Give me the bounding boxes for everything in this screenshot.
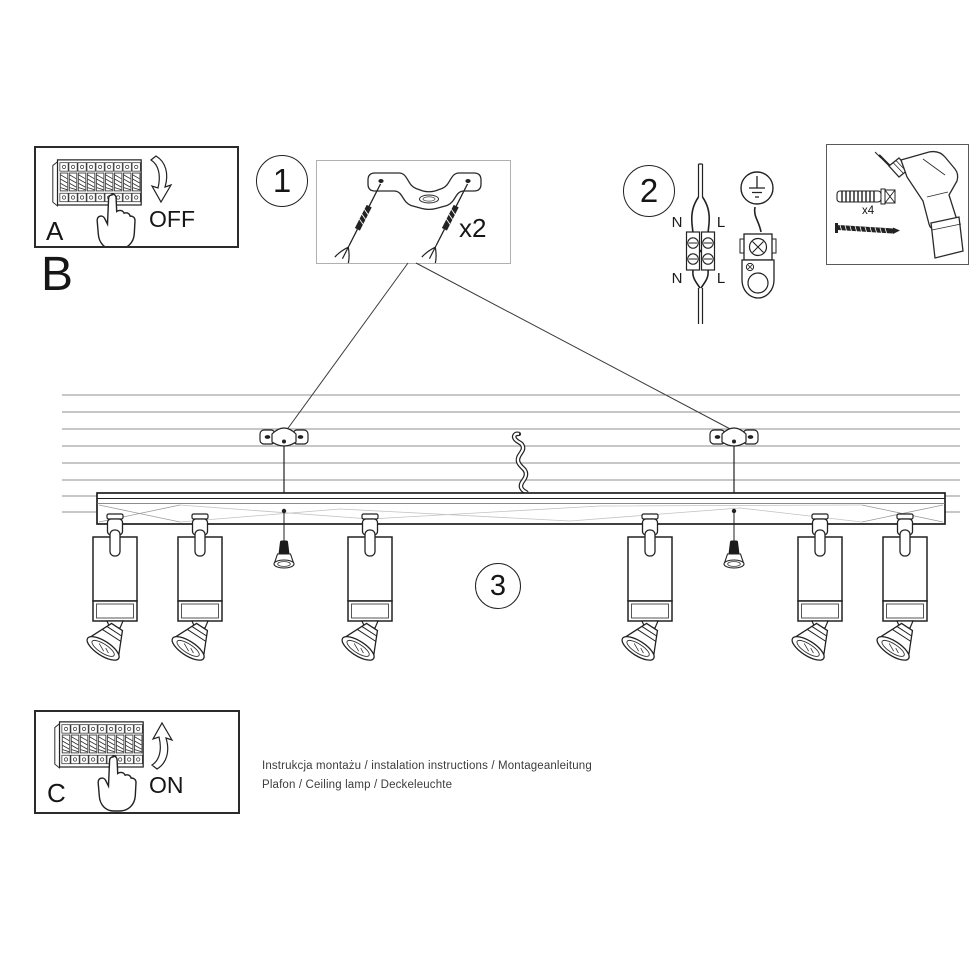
panel-c: ON C (34, 710, 240, 814)
expansion-screw-icon (335, 180, 387, 263)
arrow-up-icon (152, 723, 172, 769)
panel-a: OFF A (34, 146, 239, 248)
step-1-badge: 1 (256, 155, 308, 207)
footer-text: Instrukcja montażu / instalation instruc… (262, 757, 592, 795)
step-2-number: 2 (640, 172, 658, 210)
ceiling-lamp-illustration (40, 255, 970, 705)
breaker-panel-icon (53, 160, 141, 206)
breaker-panel-icon (55, 722, 143, 768)
step-1-number: 1 (273, 162, 291, 200)
leader-lines (286, 263, 734, 431)
wall-plug-icon (837, 189, 895, 204)
spotlight-icon (789, 514, 842, 665)
quantity-x4: x4 (862, 206, 874, 218)
step-3-badge: 3 (475, 563, 521, 609)
live-label-top: L (717, 214, 725, 231)
instruction-sheet: OFF A B 1 x2 2 (0, 0, 970, 970)
drill-illustration (875, 152, 963, 258)
neutral-label-top: N (672, 214, 683, 231)
footer-line-2: Plafon / Ceiling lamp / Deckeleuchte (262, 776, 592, 795)
footer-line-1: Instrukcja montażu / instalation instruc… (262, 757, 592, 776)
step-3-number: 3 (490, 570, 506, 603)
spotlight-icon (84, 514, 137, 665)
ceiling-bracket-icon (710, 428, 758, 446)
panel-c-label: C (47, 780, 66, 806)
arrow-down-icon (151, 156, 171, 202)
step-1-parts-box (316, 160, 511, 264)
on-label: ON (149, 774, 184, 797)
panel-a-label: A (46, 218, 63, 244)
spotlight-icon (339, 514, 392, 665)
off-label: OFF (149, 208, 195, 231)
tools-box (826, 144, 969, 265)
spotlight-icon (619, 514, 672, 665)
screw-icon (835, 223, 900, 235)
quantity-x2: x2 (459, 215, 486, 241)
bracket-screw-lines (284, 445, 734, 493)
cover-cap-icon (724, 524, 744, 568)
cover-cap-icon (274, 524, 294, 568)
ground-symbol-icon (741, 172, 773, 204)
spotlight-icon (169, 514, 222, 665)
spotlight-icon (874, 514, 927, 665)
ceiling-bracket-icon (260, 428, 308, 446)
mains-cable-icon (692, 164, 709, 233)
